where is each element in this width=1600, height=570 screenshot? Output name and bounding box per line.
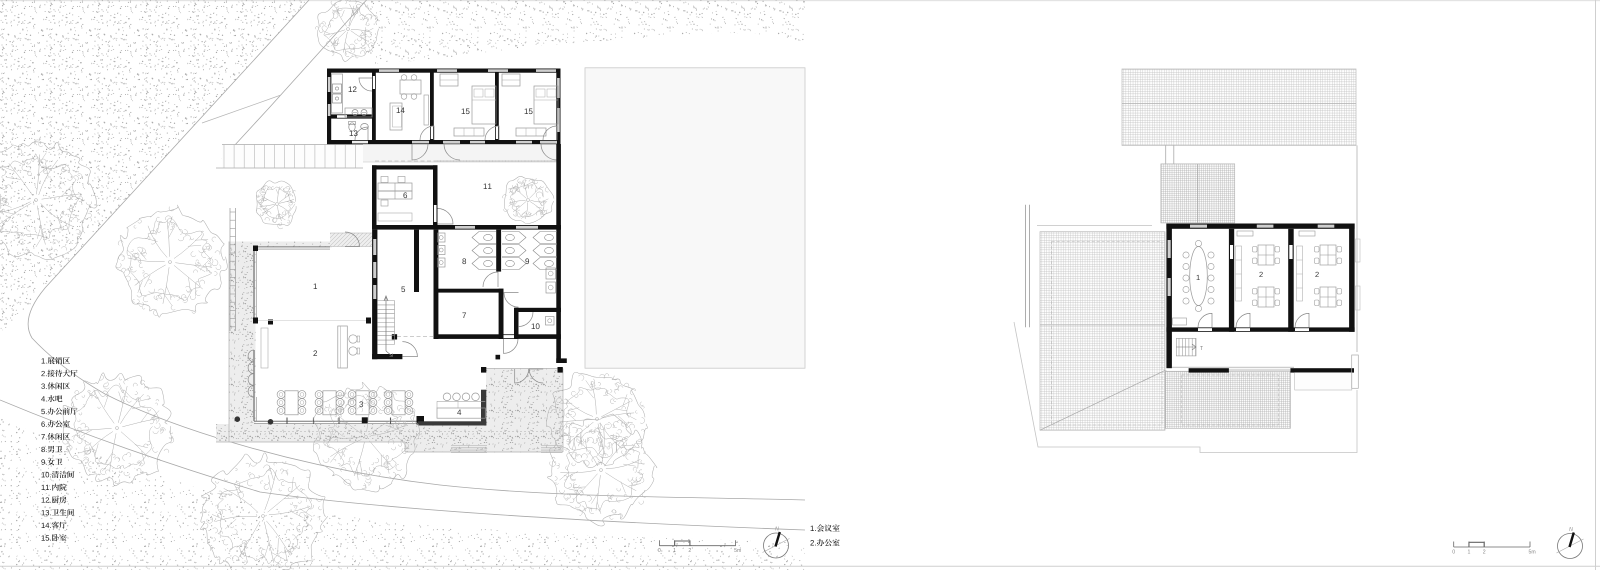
svg-text:5m: 5m	[1528, 550, 1535, 556]
svg-text:2: 2	[1483, 550, 1486, 556]
svg-text:0: 0	[1452, 550, 1455, 556]
svg-text:2: 2	[688, 548, 691, 554]
svg-text:1: 1	[673, 548, 676, 554]
svg-text:1: 1	[1467, 550, 1470, 556]
svg-text:T: T	[1200, 346, 1203, 352]
svg-text:N: N	[775, 527, 779, 533]
svg-text:0: 0	[658, 548, 661, 554]
svg-text:N: N	[1569, 527, 1573, 533]
svg-text:5m: 5m	[734, 548, 741, 554]
